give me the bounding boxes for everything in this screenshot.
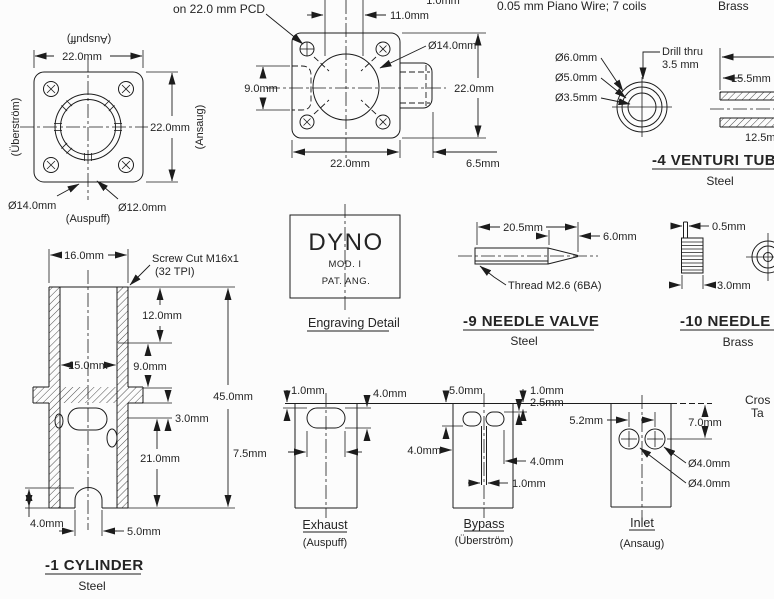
edge-fragment-2: Ta xyxy=(751,406,764,420)
drill-note-line2: 3.5 mm xyxy=(662,59,699,71)
cylinder-title: -1 CYLINDER xyxy=(45,557,144,574)
brass-material-top: Brass xyxy=(718,0,749,13)
dia-inner-label: Ø12.0mm xyxy=(118,202,166,214)
venturi-tube-view: Ø6.0mm Ø5.0mm Ø3.5mm Drill thru 3.5 mm 1… xyxy=(555,46,774,188)
piano-wire-note: 0.05 mm Piano Wire; 7 coils xyxy=(497,0,646,13)
edge-text-fragments: Cros Ta xyxy=(745,393,770,420)
needle-knob-view: 0.5mm 3.0mm -10 NEEDLE KNOB Brass xyxy=(669,221,774,349)
dim-7-5-exhaust: 7.5mm xyxy=(233,448,267,460)
dim-height-flange-front: 22.0mm xyxy=(454,83,494,95)
dim-4-right-bypass: 4.0mm xyxy=(530,456,564,468)
dim-6-valve: 6.0mm xyxy=(603,231,637,243)
engraving-pat: PAT. ANG. xyxy=(322,276,371,287)
dia-3-5-label: Ø3.5mm xyxy=(555,92,597,104)
bypass-subtitle: (Überström) xyxy=(455,535,514,547)
dim-12-5: 12.5mm xyxy=(745,132,774,144)
dim-flange-width: 22.0mm xyxy=(62,51,102,63)
dim-21: 21.0mm xyxy=(140,453,180,465)
top-notes: on 22.0 mm PCD 0.05 mm Piano Wire; 7 coi… xyxy=(173,0,749,44)
venturi-material: Steel xyxy=(706,174,733,188)
dim-1-bottom-bypass: 1.0mm xyxy=(512,478,546,490)
dim-11: 11.0mm xyxy=(390,10,429,22)
label-ueberstroem-left: (Überström) xyxy=(10,98,22,157)
thread-note: Thread M2.6 (6BA) xyxy=(508,280,602,292)
dim-1-top-bypass: 1.0mm xyxy=(530,385,564,397)
screw-cut-note-1: Screw Cut M16x1 xyxy=(152,253,239,265)
dim-7-inlet: 7.0mm xyxy=(688,417,722,429)
dim-1-exhaust: 1.0mm xyxy=(291,385,325,397)
dim-clipped-top: 1.0mm xyxy=(426,0,460,7)
exhaust-subtitle: (Auspuff) xyxy=(303,537,347,549)
pcd-note: on 22.0 mm PCD xyxy=(173,2,265,16)
dim-15: 15.0mm xyxy=(68,360,108,372)
dim-16: 16.0mm xyxy=(64,250,104,262)
cylinder-material: Steel xyxy=(78,579,105,593)
inlet-subtitle: (Ansaug) xyxy=(620,538,665,550)
label-auspuff-bottom: (Auspuff) xyxy=(66,213,110,225)
dim-4-exhaust: 4.0mm xyxy=(373,388,407,400)
dia-4-label-b: Ø4.0mm xyxy=(688,478,730,490)
exhaust-port-view: 1.0mm 4.0mm 7.5mm Exhaust (Auspuff) xyxy=(233,385,407,549)
needle-knob-material: Brass xyxy=(723,335,754,349)
cylinder-view: 16.0mm Screw Cut M16x1 (32 TPI) 12.0mm 1… xyxy=(25,249,253,593)
needle-knob-title: -10 NEEDLE KNOB xyxy=(680,313,774,330)
bypass-port-view: 5.0mm 1.0mm 2.5mm 4.0mm 4.0mm 1.0mm Bypa… xyxy=(407,385,563,547)
dim-0-5: 0.5mm xyxy=(712,221,746,233)
dim-5-cyl: 5.0mm xyxy=(127,526,161,538)
dim-3-cyl: 3.0mm xyxy=(175,413,209,425)
label-ansaug-right: (Ansaug) xyxy=(194,105,206,150)
dim-45: 45.0mm xyxy=(213,391,253,403)
dia-6-label: Ø6.0mm xyxy=(555,52,597,64)
dim-12: 12.0mm xyxy=(142,310,182,322)
dia-outer-label: Ø14.0mm xyxy=(8,200,56,212)
dia-5-label: Ø5.0mm xyxy=(555,72,597,84)
edge-fragment-1: Cros xyxy=(745,393,770,407)
dia-4-label-a: Ø4.0mm xyxy=(688,458,730,470)
engraving-caption: Engraving Detail xyxy=(308,316,400,330)
needle-valve-title: -9 NEEDLE VALVE xyxy=(463,313,599,330)
inlet-port-view: 5.2mm 7.0mm Ø4.0mm Ø4.0mm Inlet (Ansaug) xyxy=(569,395,730,550)
dim-15-5: 15.5mm xyxy=(731,73,771,85)
dim-9-flange: 9.0mm xyxy=(244,83,278,95)
engraving-detail-view: DYNO MOD. I PAT. ANG. Engraving Detail xyxy=(290,204,400,331)
knurl-lines xyxy=(682,242,703,270)
inlet-title: Inlet xyxy=(630,516,654,530)
screw-cut-note-2: (32 TPI) xyxy=(155,266,195,278)
dim-20-5: 20.5mm xyxy=(503,222,543,234)
dim-flange-height: 22.0mm xyxy=(150,122,190,134)
dim-6-5: 6.5mm xyxy=(466,158,500,170)
dim-4-cyl: 4.0mm xyxy=(30,518,64,530)
dim-5-2-inlet: 5.2mm xyxy=(569,415,603,427)
dim-3-knob: 3.0mm xyxy=(717,280,751,292)
dim-width-flange-front: 22.0mm xyxy=(330,158,370,170)
engraving-mod: MOD. I xyxy=(328,259,361,270)
engraving-brand: DYNO xyxy=(308,229,383,256)
bypass-title: Bypass xyxy=(464,517,505,531)
exhaust-title: Exhaust xyxy=(302,518,348,532)
label-auspuff-top: (Auspuff) xyxy=(67,33,111,45)
needle-valve-material: Steel xyxy=(510,334,537,348)
dim-2-5-bypass: 2.5mm xyxy=(530,397,564,409)
flange-end-view: 22.0mm 22.0mm (Auspuff) (Überström) (Ans… xyxy=(8,33,206,225)
flange-front-view: 1.0mm 11.0mm 9.0mm 22.0mm 22.0mm 6.5mm xyxy=(244,0,499,170)
needle-valve-view: 20.5mm 6.0mm Thread M2.6 (6BA) -9 NEEDLE… xyxy=(458,222,637,348)
dim-9-cyl: 9.0mm xyxy=(133,361,167,373)
dim-5-bypass: 5.0mm xyxy=(449,385,483,397)
dim-4-left-bypass: 4.0mm xyxy=(407,445,441,457)
mechanical-drawing: on 22.0 mm PCD 0.05 mm Piano Wire; 7 coi… xyxy=(0,0,774,599)
venturi-title: -4 VENTURI TUBE xyxy=(652,152,774,169)
drill-note-line1: Drill thru xyxy=(662,46,703,58)
drawing-sheet: on 22.0 mm PCD 0.05 mm Piano Wire; 7 coi… xyxy=(0,0,774,599)
dia-14-label: Ø14.0mm xyxy=(428,40,476,52)
